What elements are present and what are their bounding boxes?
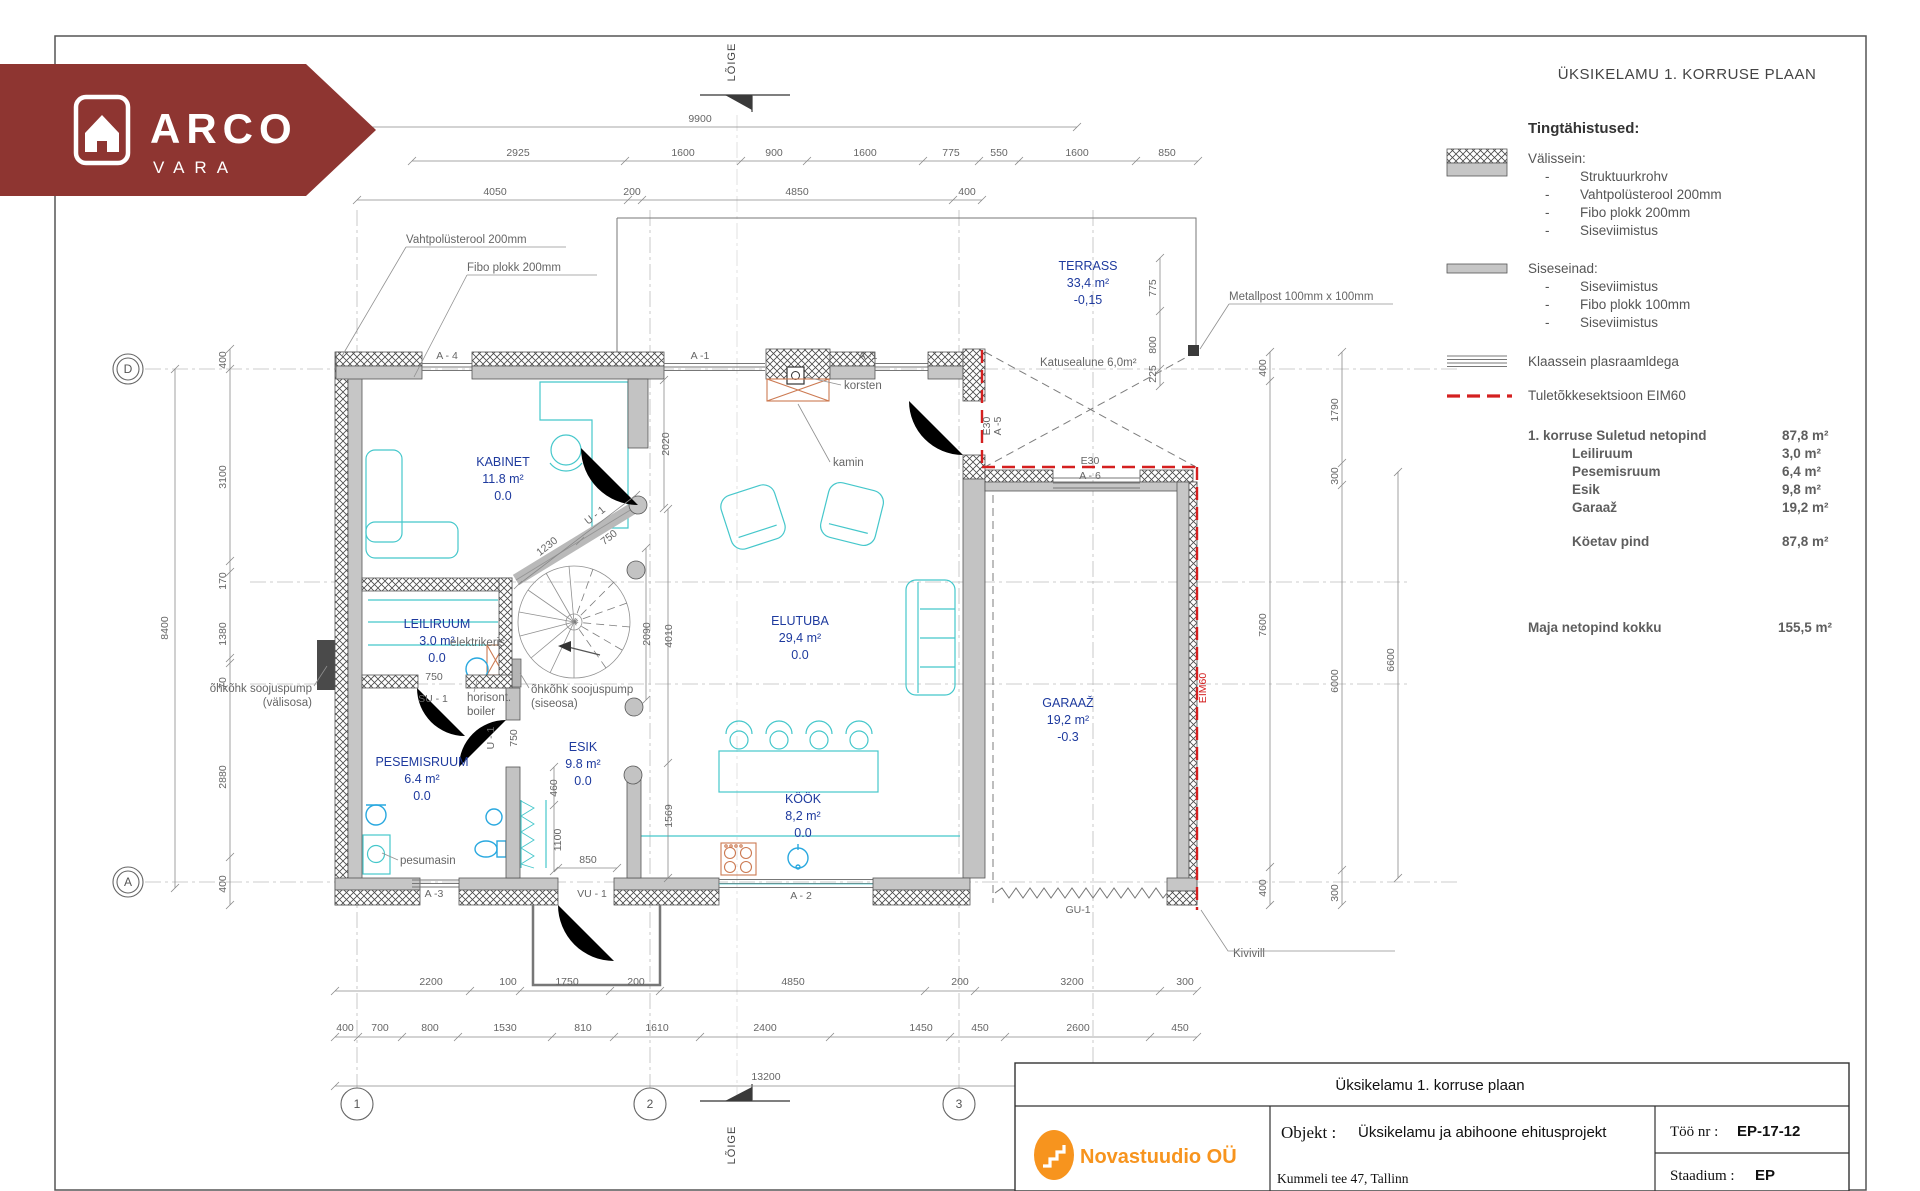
callout-text: Vahtpolüsterool 200mm — [406, 234, 527, 246]
dimension-label: 4010 — [663, 624, 675, 648]
dimension-label: 300 — [1176, 976, 1194, 988]
kitchen-sink — [788, 844, 808, 869]
dimension-label: 6000 — [1329, 669, 1341, 693]
dimension-label: 200 — [951, 976, 969, 988]
callout-text: korsten — [844, 380, 882, 392]
area-total-label: Maja netopind kokku — [1528, 620, 1662, 635]
area-row-label: Esik — [1572, 482, 1600, 497]
bar-stools — [726, 721, 872, 749]
dimension-label: 400 — [217, 351, 229, 369]
dimension-label: 750 — [508, 729, 520, 747]
legend-exterior-wall: Välissein: -Struktuurkrohv -Vahtpolüster… — [1447, 149, 1722, 238]
dimension-line — [331, 987, 1201, 995]
area-row-value: 3,0 m² — [1782, 446, 1822, 461]
area-row-label: 1. korruse Suletud netopind — [1528, 428, 1707, 443]
dimension-label: 7600 — [1257, 613, 1269, 637]
dimension-label: 1600 — [853, 147, 877, 159]
legend-label: Siseseinad: — [1528, 261, 1598, 276]
area-row-label: Pesemisruum — [1572, 464, 1661, 479]
dimension-label: 775 — [1147, 279, 1159, 297]
window-a1-left — [664, 364, 765, 371]
dimension-label: 1610 — [645, 1022, 669, 1034]
legend-item: Fibo plokk 100mm — [1580, 297, 1690, 312]
kabinet-wall — [628, 379, 648, 448]
dimension-label: 9900 — [688, 113, 712, 125]
door-kabinet — [581, 448, 638, 505]
window-a1-right — [875, 364, 928, 371]
dimension-label: 2400 — [753, 1022, 777, 1034]
legend-heading: Tingtähistused: — [1528, 120, 1639, 137]
area-row-value: 6,4 m² — [1782, 464, 1822, 479]
dimension-label: 810 — [574, 1022, 592, 1034]
dimension-label: 400 — [1257, 359, 1269, 377]
dimension-label: 775 — [942, 147, 960, 159]
dimension-label: 225 — [1147, 365, 1159, 383]
room-area: 33,4 m² — [1067, 276, 1109, 290]
room-area: 19,2 m² — [1047, 713, 1089, 727]
legend-item: Fibo plokk 200mm — [1580, 205, 1690, 220]
legend-item: Siseviimistus — [1580, 315, 1658, 330]
glass-wall-a2 — [719, 880, 873, 888]
dimension-label: 300 — [1329, 467, 1341, 485]
dimension-label: 3100 — [217, 465, 229, 489]
dimension-label: 400 — [217, 875, 229, 893]
toilet — [475, 841, 497, 857]
dimension-label: 2880 — [217, 765, 229, 789]
post — [624, 766, 642, 784]
bullet: - — [1545, 169, 1550, 184]
room-name: KÖÖK — [785, 792, 822, 806]
novastuudio-logo — [1034, 1130, 1074, 1180]
dimension-label: 850 — [1158, 147, 1176, 159]
object-value: Üksikelamu ja abihoone ehitusprojekt — [1358, 1123, 1607, 1141]
dimension-label: 1569 — [663, 804, 675, 828]
callout-text: horisont. — [467, 692, 511, 704]
grid-row-a: A — [124, 875, 132, 889]
dimension-label: 2020 — [660, 432, 672, 456]
stage-label: Staadium : — [1670, 1168, 1735, 1184]
room-level: -0,15 — [1074, 293, 1103, 307]
dimension-label: 170 — [217, 572, 229, 590]
wall-tag: A - 6 — [1079, 470, 1101, 482]
room-area: 29,4 m² — [779, 631, 821, 645]
room-level: 0.0 — [413, 789, 430, 803]
spiral-staircase — [518, 566, 630, 678]
bullet: - — [1545, 315, 1550, 330]
bullet: - — [1545, 223, 1550, 238]
arcovara-banner: ARCO VARA — [0, 64, 376, 196]
wall-tag: A -5 — [992, 417, 1004, 436]
wall-tag: A -3 — [425, 888, 444, 900]
section-label-bottom: LÕIGE — [725, 1126, 738, 1165]
wall-tag: E30 — [1081, 455, 1100, 467]
brand-line2: VARA — [153, 158, 238, 177]
dimension-label: 400 — [958, 186, 976, 198]
title-block: Üksikelamu 1. korruse plaan Novastuudio … — [1015, 1063, 1849, 1191]
flue — [787, 367, 804, 384]
dimension-label: 550 — [990, 147, 1008, 159]
dimension-line — [353, 123, 1081, 131]
callout-text: (välisosa) — [263, 697, 312, 709]
dimension-label: 850 — [579, 854, 597, 866]
dimension-line — [1394, 468, 1402, 882]
room-name: ESIK — [569, 740, 598, 754]
section-marker-top: LÕIGE — [700, 43, 790, 112]
object-address: Kummeli tee 47, Tallinn — [1277, 1171, 1409, 1186]
callout-leader — [1201, 910, 1395, 951]
exterior-wall-swatch — [1447, 149, 1507, 163]
grid-col-2: 2 — [647, 1097, 654, 1111]
dimension-label: 2090 — [641, 622, 653, 646]
bullet: - — [1545, 279, 1550, 294]
callout-leader — [798, 404, 830, 462]
dimension-label: 750 — [425, 671, 443, 683]
area-row-value: 9,8 m² — [1782, 482, 1822, 497]
dimension-label: 200 — [623, 186, 641, 198]
callout-text: kamin — [833, 457, 864, 469]
armchair — [718, 482, 789, 553]
dimension-line — [331, 1033, 1201, 1041]
area-row-value: 87,8 m² — [1782, 534, 1829, 549]
legend-label: Klaassein plasraamldega — [1528, 354, 1679, 369]
dimension-label: 1450 — [909, 1022, 933, 1034]
dimension-label: 4850 — [785, 186, 809, 198]
legend-label: Tuletõkkesektsioon EIM60 — [1528, 388, 1686, 403]
callout-leader — [1200, 304, 1229, 349]
dimension-label: 400 — [336, 1022, 354, 1034]
wc-sink — [486, 809, 502, 825]
dimension-label: 1750 — [555, 976, 579, 988]
dimension-label: 2200 — [419, 976, 443, 988]
dimension-label: 800 — [1147, 336, 1159, 354]
dimension-label: 4050 — [483, 186, 507, 198]
area-row-label: Garaaž — [1572, 500, 1617, 515]
section-label-top: LÕIGE — [725, 43, 738, 82]
callout-text: õhkõhk soojuspump — [531, 684, 633, 696]
dimension-label: 800 — [421, 1022, 439, 1034]
glass-wall-swatch — [1447, 356, 1507, 367]
room-name: GARAAŽ — [1042, 695, 1094, 710]
shower — [521, 800, 546, 868]
bullet: - — [1545, 187, 1550, 202]
callout-text: Metallpost 100mm x 100mm — [1229, 291, 1373, 303]
callout-leader — [342, 247, 406, 356]
dimension-label: 3200 — [1060, 976, 1084, 988]
room-labels: KABINET11.8 m²0.0LEILIRUUM3.0 m²0.0PESEM… — [375, 259, 1117, 840]
callout-text: pesumasin — [400, 855, 456, 867]
dimension-label: 1100 — [552, 829, 564, 852]
callout-text: Kivivill — [1233, 948, 1265, 960]
dimension-label: 200 — [627, 976, 645, 988]
room-area: 11.8 m² — [482, 472, 523, 486]
garage-door-gu1 — [995, 888, 1167, 898]
grid-col-3: 3 — [956, 1097, 963, 1111]
post — [627, 561, 645, 579]
armchair — [818, 480, 886, 548]
callout-labels: Vahtpolüsterool 200mmFibo plokk 200mmMet… — [210, 234, 1395, 960]
dimension-label: 450 — [1171, 1022, 1189, 1034]
room-level: 0.0 — [791, 648, 808, 662]
dimension-label: 1600 — [1065, 147, 1089, 159]
dimension-label: 400 — [1257, 879, 1269, 897]
area-table: 1. korruse Suletud netopind 87,8 m² Leil… — [1528, 428, 1833, 635]
dimension-label: 8400 — [159, 616, 171, 640]
room-name: ELUTUBA — [771, 614, 829, 628]
callout-text: elektrikeris — [450, 637, 505, 649]
brand-line1: ARCO — [150, 105, 298, 152]
dimension-label: 1790 — [1329, 398, 1341, 422]
door-elutuba-east — [909, 401, 963, 455]
walls — [335, 349, 1197, 985]
furniture-elutuba — [718, 480, 955, 695]
dimension-label: 13200 — [751, 1071, 780, 1083]
legend-glass-wall: Klaassein plasraamldega — [1447, 354, 1679, 369]
area-row-label: Köetav pind — [1572, 534, 1649, 549]
room-name: TERRASS — [1058, 259, 1117, 273]
room-level: 0.0 — [494, 489, 511, 503]
corner-sofa — [366, 450, 402, 542]
room-level: 0.0 — [794, 826, 811, 840]
dimension-label: 6600 — [1385, 648, 1397, 672]
dimension-label: 460 — [548, 779, 560, 797]
wall-tag: GU-1 — [1065, 904, 1090, 916]
callout-text: boiler — [467, 706, 495, 718]
wall-tag: EIM60 — [1197, 673, 1209, 704]
company-name: Novastuudio OÜ — [1080, 1145, 1237, 1168]
area-row-label: Leiliruum — [1572, 446, 1633, 461]
dimension-label: 700 — [371, 1022, 389, 1034]
room-name: KABINET — [476, 455, 530, 469]
sink — [366, 805, 386, 825]
legend-item: Siseviimistus — [1580, 279, 1658, 294]
wall-tag: U - 1 — [485, 726, 497, 749]
title-block-drawing-name: Üksikelamu 1. korruse plaan — [1335, 1076, 1524, 1094]
wall-tag: SU - 1 — [418, 693, 448, 705]
legend-interior-wall: Siseseinad: -Siseviimistus -Fibo plokk 1… — [1447, 261, 1690, 330]
metal-post — [1188, 345, 1199, 356]
callout-text: (siseosa) — [531, 698, 578, 710]
leiliruum-wall — [362, 578, 512, 591]
wall-tag: A - 4 — [436, 350, 458, 362]
room-level: 0.0 — [574, 774, 591, 788]
kitchen-island — [719, 751, 878, 792]
area-row-value: 87,8 m² — [1782, 428, 1829, 443]
legend-item: Siseviimistus — [1580, 223, 1658, 238]
dimension-label: 450 — [971, 1022, 989, 1034]
door-vu1 — [558, 905, 614, 961]
dimension-label: 900 — [765, 147, 783, 159]
legend-item: Struktuurkrohv — [1580, 169, 1668, 184]
legend-item: Vahtpolüsterool 200mm — [1580, 187, 1722, 202]
wall-tag: A -1 — [691, 350, 710, 362]
bullet: - — [1545, 297, 1550, 312]
heat-pump-outdoor-unit — [317, 640, 335, 690]
room-area: 9.8 m² — [565, 757, 600, 771]
dimension-label: 100 — [499, 976, 517, 988]
corner-sofa-seat — [366, 522, 458, 558]
section-marker-bottom: LÕIGE — [700, 1084, 790, 1164]
legend-fire-section: Tuletõkkesektsioon EIM60 — [1447, 388, 1686, 403]
callout-text: õhkõhk soojuspump — [210, 683, 312, 695]
drawing-title: ÜKSIKELAMU 1. KORRUSE PLAAN — [1558, 65, 1817, 83]
room-name: PESEMISRUUM — [375, 755, 468, 769]
wall-tag: A - 2 — [790, 890, 812, 902]
wall-tag: A -1 — [859, 350, 878, 362]
area-total-value: 155,5 m² — [1778, 620, 1833, 635]
dimension-label: 2600 — [1066, 1022, 1090, 1034]
grid-row-d: D — [124, 362, 133, 376]
wall-tag: VU - 1 — [577, 888, 607, 900]
floor-plan-sheet: LÕIGE LÕIGE D A 1 2 3 990029251600900160… — [0, 0, 1920, 1191]
object-label: Objekt : — [1281, 1123, 1336, 1142]
work-no-label: Töö nr : — [1670, 1124, 1718, 1140]
callout-text: Katusealune 6,0m² — [1040, 357, 1137, 369]
dimension-label: 1530 — [493, 1022, 517, 1034]
room-area: 6.4 m² — [404, 772, 439, 786]
fire-section-line — [982, 350, 1197, 910]
room-level: 0.0 — [428, 651, 445, 665]
cooktop — [721, 843, 756, 875]
room-name: LEILIRUUM — [404, 617, 471, 631]
dimension-label: 2925 — [506, 147, 530, 159]
legend-label: Välissein: — [1528, 151, 1586, 166]
dimension-line — [353, 196, 986, 204]
dimension-label: 4850 — [781, 976, 805, 988]
stage-value: EP — [1755, 1167, 1775, 1184]
interior-wall-swatch — [1447, 264, 1507, 273]
dimension-label: 1380 — [217, 622, 229, 646]
callout-text: Fibo plokk 200mm — [467, 262, 561, 274]
grid-col-1: 1 — [354, 1097, 361, 1111]
room-area: 8,2 m² — [785, 809, 820, 823]
dimension-label: 300 — [1329, 884, 1341, 902]
room-level: -0.3 — [1057, 730, 1079, 744]
post — [625, 698, 643, 716]
dimension-label: 1600 — [671, 147, 695, 159]
terrace-outline — [617, 218, 1199, 467]
work-no-value: EP-17-12 — [1737, 1123, 1800, 1140]
bullet: - — [1545, 205, 1550, 220]
dimension-line — [1338, 348, 1346, 909]
heat-pump-indoor-unit — [512, 659, 521, 687]
window-a4 — [422, 364, 472, 371]
dimension-line — [171, 365, 179, 892]
office-chair — [551, 435, 581, 465]
area-row-value: 19,2 m² — [1782, 500, 1829, 515]
